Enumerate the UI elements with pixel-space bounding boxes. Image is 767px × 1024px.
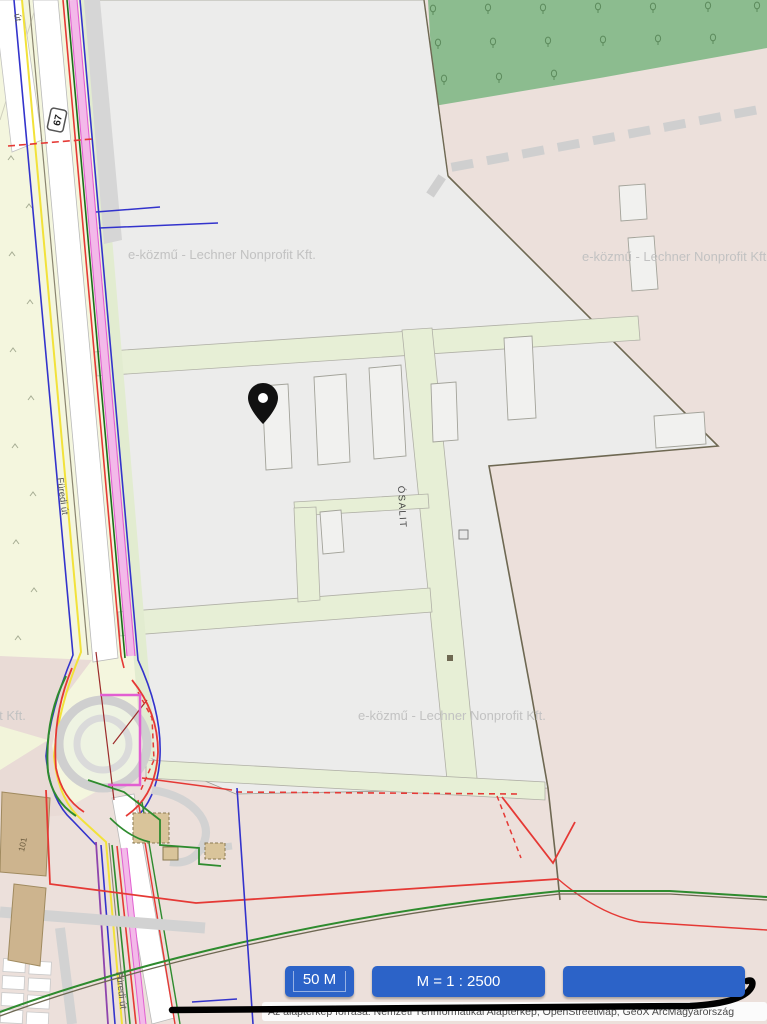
ratio-label: M = 1 : 2500 xyxy=(417,973,501,990)
map-toolbar: 50 M M = 1 : 2500 xyxy=(0,966,767,998)
scale-label: 50 M xyxy=(303,971,336,988)
watermark-text: e-közmű - Lechner Nonprofit Kft. xyxy=(0,708,26,723)
attribution-text: Az alaptérkép forrása: Nemzeti Térinform… xyxy=(268,1006,734,1018)
scale-bracket: 50 M xyxy=(293,971,346,992)
attribution-bar: Az alaptérkép forrása: Nemzeti Térinform… xyxy=(262,1002,767,1021)
street-label-ut: út. xyxy=(11,13,24,25)
road-shield-67: 67 xyxy=(47,108,67,133)
map-ratio-button[interactable]: M = 1 : 2500 xyxy=(372,966,545,997)
extra-button[interactable] xyxy=(563,966,745,997)
map-viewport[interactable]: e-közmű - Lechner Nonprofit Kft. e-közmű… xyxy=(0,0,767,1024)
map-canvas[interactable]: e-közmű - Lechner Nonprofit Kft. e-közmű… xyxy=(0,0,767,1024)
watermark-text: e-közmű - Lechner Nonprofit Kft. xyxy=(358,708,546,723)
street-label-osalit: ÓSALIT xyxy=(395,486,408,529)
watermark-text: e-közmű - Lechner Nonprofit Kft. xyxy=(582,249,767,264)
scale-button[interactable]: 50 M xyxy=(285,966,354,997)
watermark-text: e-közmű - Lechner Nonprofit Kft. xyxy=(128,247,316,262)
